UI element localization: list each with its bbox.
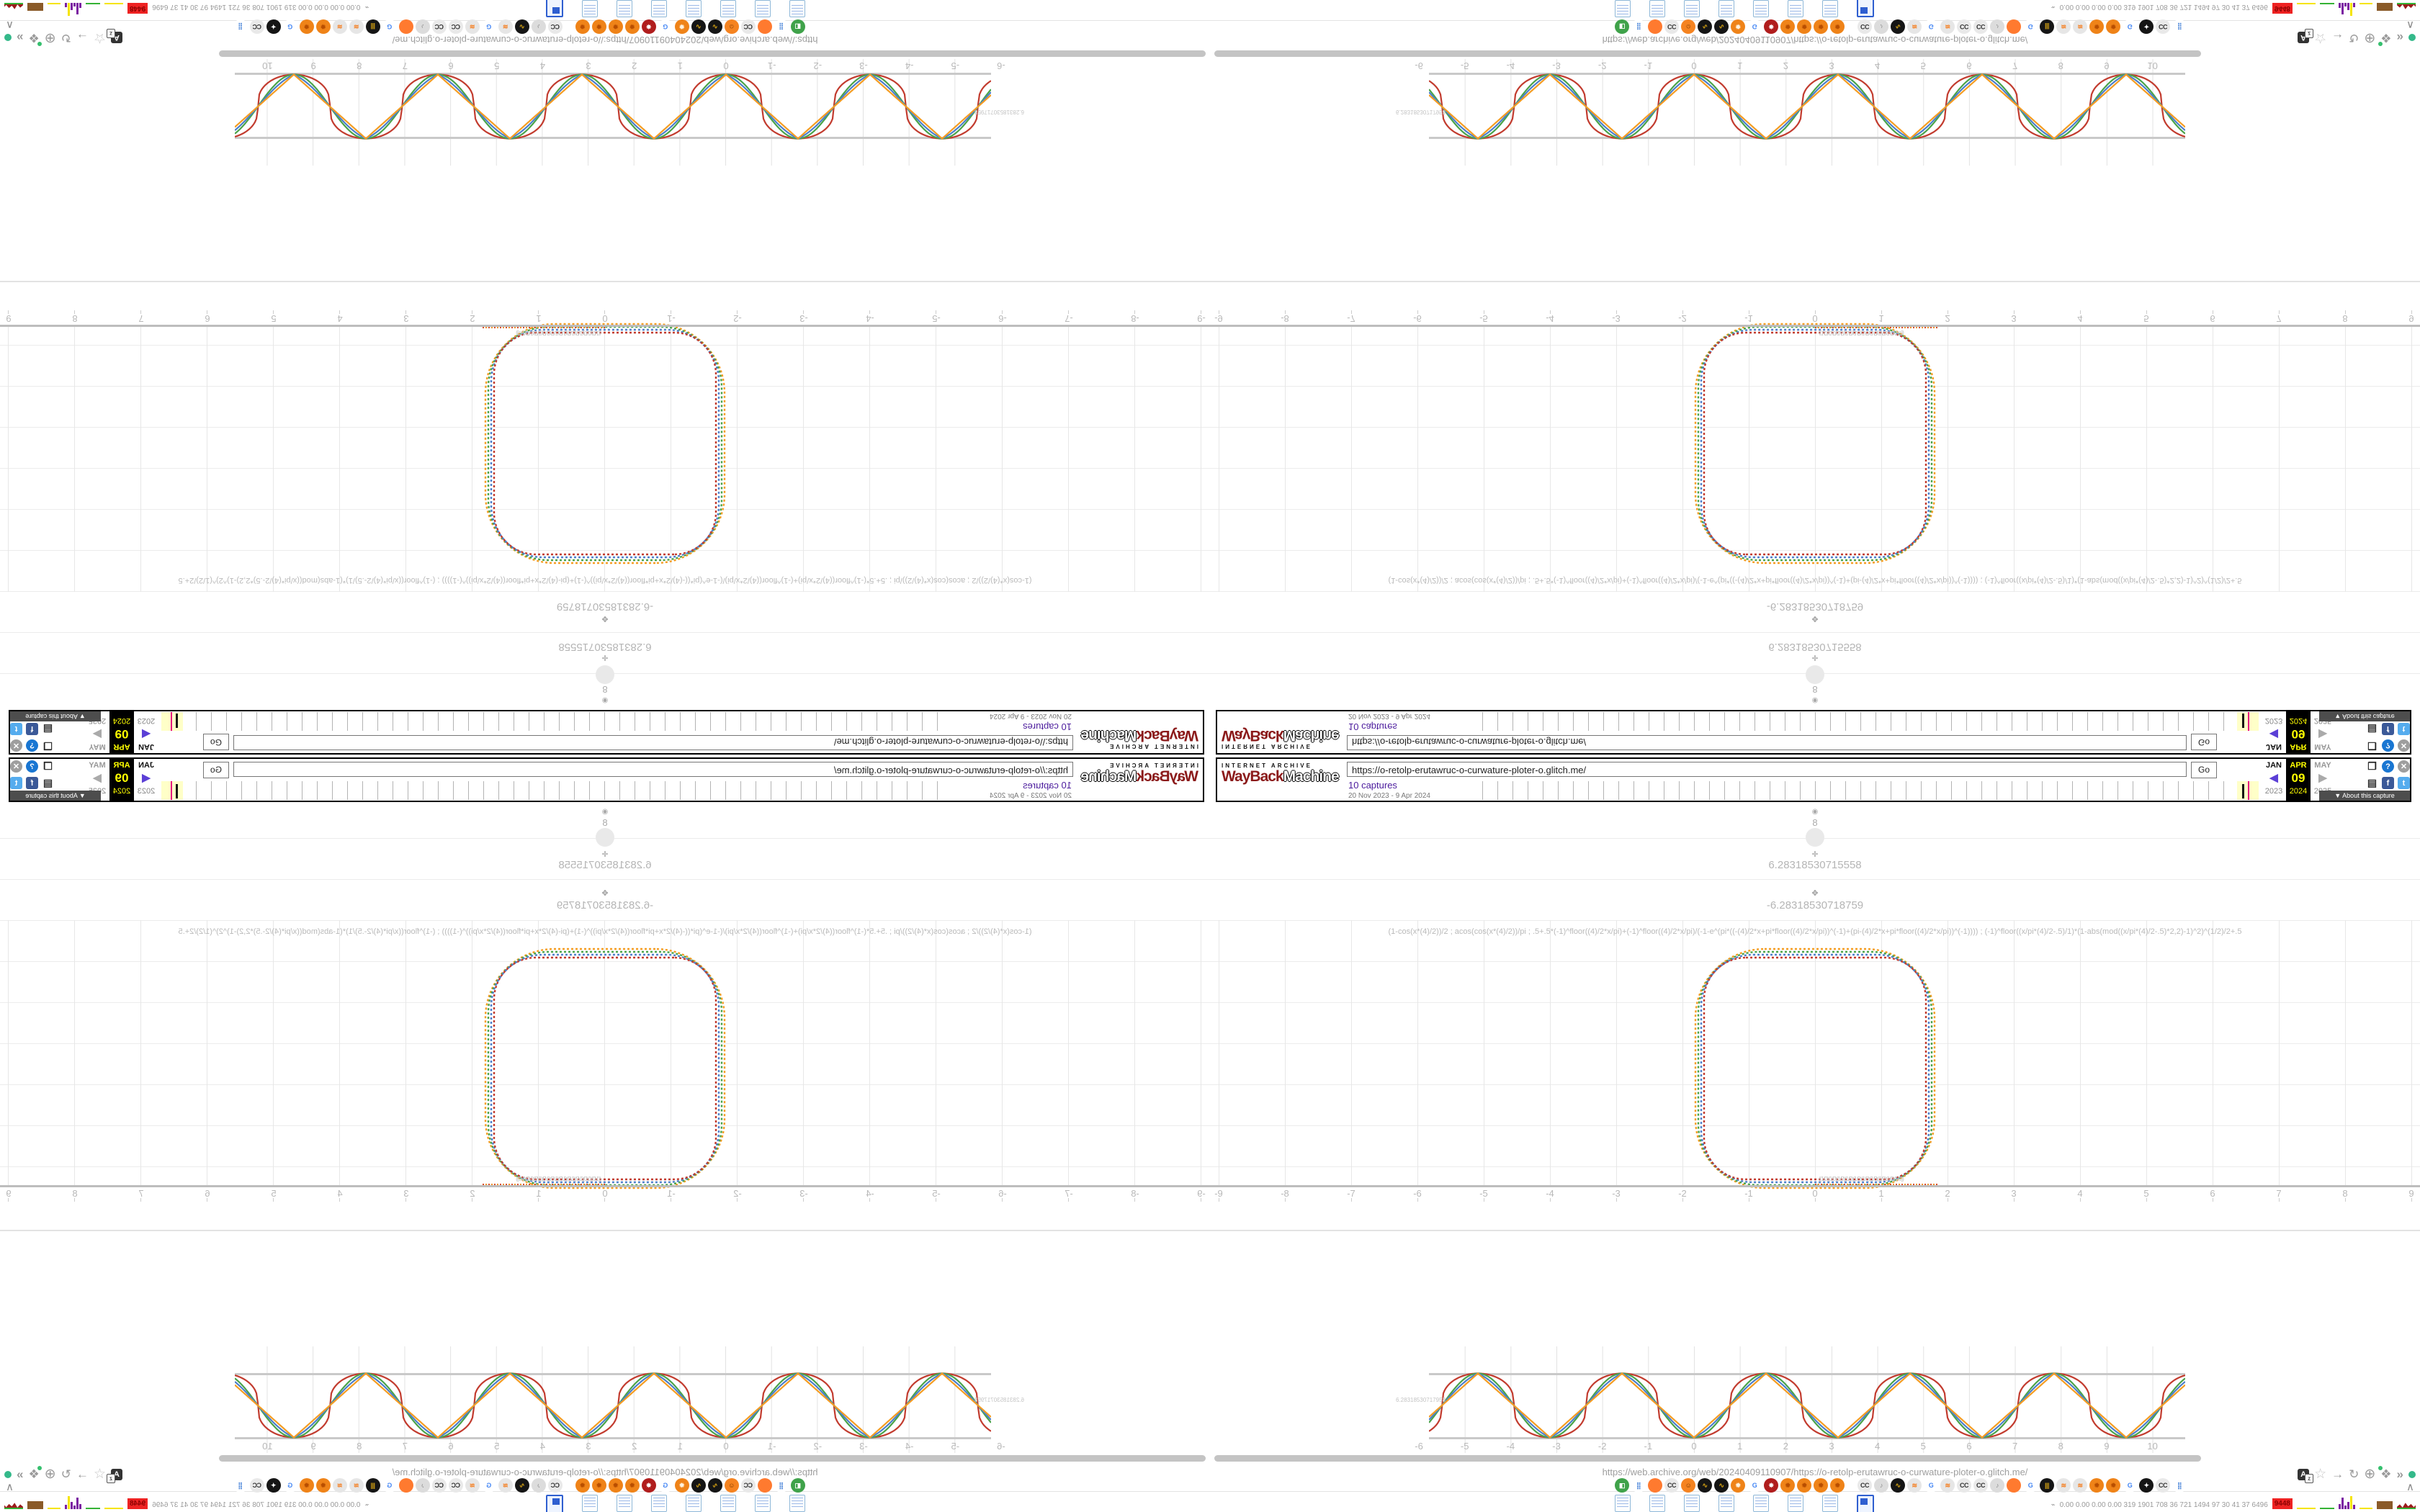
translate-icon[interactable]: Az xyxy=(111,32,122,43)
notepad-file-icon[interactable] xyxy=(1822,0,1838,17)
notepad-file-icon[interactable] xyxy=(755,0,771,17)
notepad-file-icon[interactable] xyxy=(1649,1495,1665,1512)
bookmark-favicon[interactable]: ☺ xyxy=(1681,19,1695,34)
bookmark-favicon[interactable]: ✹ xyxy=(1780,1478,1795,1493)
bookmark-favicon[interactable]: G xyxy=(382,19,397,34)
collapse-chevron-icon[interactable]: ∧ xyxy=(6,19,14,32)
sparkline-current-highlight[interactable] xyxy=(2237,781,2259,800)
bookmark-favicon[interactable]: ≋ xyxy=(465,1478,480,1493)
forward-arrow-icon[interactable]: → xyxy=(76,30,89,45)
bookmark-favicon[interactable]: G xyxy=(2123,19,2137,34)
bookmark-favicon[interactable] xyxy=(399,19,413,34)
window-app-icon[interactable] xyxy=(546,0,563,17)
next-capture-arrow[interactable]: ▶ xyxy=(85,770,109,786)
bookmark-favicon[interactable] xyxy=(1648,19,1662,34)
screenshot-icon[interactable]: ▤ xyxy=(2366,723,2378,735)
bookmark-favicon[interactable]: CC xyxy=(250,1478,264,1493)
bookmark-favicon[interactable]: ∿ xyxy=(515,1478,529,1493)
bookmark-favicon[interactable] xyxy=(1648,1478,1662,1493)
bookmark-favicon[interactable]: ∿ xyxy=(1714,1478,1729,1493)
address-url-text[interactable]: https://web.archive.org/web/202404091109… xyxy=(0,35,1210,45)
next-capture-arrow[interactable]: ▶ xyxy=(2311,726,2335,742)
notepad-file-icon[interactable] xyxy=(686,1495,702,1512)
bookmark-favicon[interactable]: ≋ xyxy=(349,1478,364,1493)
bookmark-favicon[interactable]: ||| xyxy=(366,1478,380,1493)
bookmark-favicon[interactable]: ✹ xyxy=(316,19,331,34)
captures-sparkline[interactable] xyxy=(1482,712,2237,731)
bookmark-favicon[interactable]: ✹ xyxy=(2089,19,2104,34)
bookmark-favicon[interactable] xyxy=(2007,1478,2021,1493)
overflow-chevrons-icon[interactable]: » xyxy=(17,1467,23,1482)
notepad-file-icon[interactable] xyxy=(1684,0,1700,17)
bookmark-favicon[interactable]: ✹ xyxy=(592,1478,606,1493)
prev-month-label[interactable]: JAN xyxy=(134,742,158,753)
twitter-share-icon[interactable]: t xyxy=(2398,777,2410,789)
bookmark-favicon[interactable]: CC xyxy=(449,1478,463,1493)
move-handle-icon[interactable]: ✥ xyxy=(0,614,1210,624)
bookmark-favicon[interactable]: ≋ xyxy=(333,1478,347,1493)
prev-year-label[interactable]: 2023 xyxy=(2262,716,2286,726)
bookmark-star-icon[interactable]: ☆ xyxy=(94,1467,106,1482)
bookmark-favicon[interactable]: ≋ xyxy=(1907,1478,1922,1493)
reload-icon[interactable]: ↻ xyxy=(61,1467,71,1482)
rotation-knob[interactable] xyxy=(1806,665,1824,684)
bookmark-favicon[interactable]: ✹ xyxy=(1814,19,1828,34)
bookmark-favicon[interactable]: CC xyxy=(1857,19,1872,34)
bookmark-favicon[interactable]: ✹ xyxy=(592,19,606,34)
bookmark-favicon[interactable]: G xyxy=(482,19,496,34)
globe-icon[interactable]: ⊕ xyxy=(2364,1467,2375,1482)
bookmark-favicon[interactable]: ◧ xyxy=(1615,19,1629,34)
next-month-label[interactable]: MAY xyxy=(2311,742,2335,753)
bookmark-favicon[interactable]: CC xyxy=(1957,1478,1971,1493)
move-handle-icon[interactable]: ✥ xyxy=(0,888,1210,898)
dial-icon[interactable]: ◉ xyxy=(0,808,1210,816)
horizontal-scrollbar-thumb[interactable] xyxy=(219,50,1206,57)
bookmark-favicon[interactable]: ≋ xyxy=(498,1478,513,1493)
bookmark-favicon[interactable]: CC xyxy=(1973,19,1988,34)
bookmark-favicon[interactable]: ✹ xyxy=(1814,1478,1828,1493)
twitter-share-icon[interactable]: t xyxy=(2398,723,2410,735)
address-url-text[interactable]: https://web.archive.org/web/202404091109… xyxy=(1210,35,2420,45)
bookmark-favicon[interactable]: ≋ xyxy=(349,19,364,34)
bookmark-favicon[interactable]: ◧ xyxy=(791,19,805,34)
prev-year-label[interactable]: 2023 xyxy=(2262,786,2286,796)
bookmark-favicon[interactable]: CC xyxy=(449,19,463,34)
notepad-file-icon[interactable] xyxy=(617,0,632,17)
captures-sparkline[interactable] xyxy=(1482,781,2237,800)
bookmark-favicon[interactable]: ∿ xyxy=(515,19,529,34)
forward-arrow-icon[interactable]: → xyxy=(76,1467,89,1482)
bookmark-favicon[interactable]: ✹ xyxy=(2106,19,2120,34)
bookmark-favicon[interactable]: ⣿ xyxy=(774,19,789,34)
horizontal-scrollbar-thumb[interactable] xyxy=(1214,1455,2201,1462)
bookmark-favicon[interactable]: ✹ xyxy=(609,19,623,34)
bookmark-favicon[interactable]: ✹ xyxy=(1731,1478,1745,1493)
prev-capture-arrow[interactable]: ◀ xyxy=(2262,770,2286,786)
wayback-logo[interactable]: INTERNET ARCHIVE WayBackMachine xyxy=(1222,727,1345,750)
translate-icon[interactable]: Az xyxy=(2298,32,2309,43)
overflow-chevrons-icon[interactable]: » xyxy=(2397,30,2403,45)
bookmark-favicon[interactable]: ≋ xyxy=(2073,19,2087,34)
notepad-file-icon[interactable] xyxy=(1788,0,1803,17)
collapse-chevron-icon[interactable]: ∧ xyxy=(6,1480,14,1493)
overflow-chevrons-icon[interactable]: » xyxy=(17,30,23,45)
current-year-label[interactable]: 2024 xyxy=(109,786,134,796)
address-url-text[interactable]: https://web.archive.org/web/202404091109… xyxy=(0,1467,1210,1477)
bookmark-favicon[interactable]: ||| xyxy=(2040,19,2054,34)
globe-icon[interactable]: ⊕ xyxy=(45,1467,56,1482)
facebook-share-icon[interactable]: f xyxy=(2382,777,2394,789)
bookmark-favicon[interactable]: ≋ xyxy=(498,19,513,34)
screenshot-icon[interactable]: ▤ xyxy=(42,777,54,789)
bookmark-favicon[interactable]: ✦ xyxy=(266,1478,281,1493)
bookmark-favicon[interactable]: ✹ xyxy=(675,1478,689,1493)
bookmark-favicon[interactable]: ✸ xyxy=(1764,19,1778,34)
bookmark-favicon[interactable]: ⣿ xyxy=(233,19,248,34)
extension-puzzle-icon[interactable]: ❖ xyxy=(28,1467,39,1482)
bookmark-favicon[interactable]: ≋ xyxy=(1940,1478,1955,1493)
bookmark-favicon[interactable]: ☺ xyxy=(725,1478,739,1493)
prev-year-label[interactable]: 2023 xyxy=(134,716,158,726)
rotation-knob[interactable] xyxy=(596,665,614,684)
rotation-knob[interactable] xyxy=(596,828,614,847)
bookmark-favicon[interactable]: CC xyxy=(548,1478,563,1493)
bookmark-favicon[interactable]: CC xyxy=(741,19,756,34)
bookmark-favicon[interactable]: G xyxy=(1747,1478,1762,1493)
captures-count-link[interactable]: 10 captures xyxy=(1023,780,1072,791)
bookmark-favicon[interactable] xyxy=(758,1478,772,1493)
bookmark-favicon[interactable]: ✹ xyxy=(575,1478,590,1493)
bookmark-favicon[interactable] xyxy=(758,19,772,34)
notepad-file-icon[interactable] xyxy=(651,1495,667,1512)
extension-puzzle-icon[interactable]: ❖ xyxy=(2380,1467,2391,1482)
bookmark-favicon[interactable]: ∿ xyxy=(708,1478,722,1493)
sparkline-current-highlight[interactable] xyxy=(2237,712,2259,731)
prev-capture-arrow[interactable]: ◀ xyxy=(2262,726,2286,742)
bookmark-favicon[interactable] xyxy=(399,1478,413,1493)
rotation-knob[interactable] xyxy=(1806,828,1824,847)
window-app-icon[interactable] xyxy=(1857,0,1874,17)
plus-handle-icon[interactable]: ✛ xyxy=(1210,850,2420,859)
bookmark-favicon[interactable]: ||| xyxy=(2040,1478,2054,1493)
wayback-go-button[interactable]: Go xyxy=(203,734,229,750)
bookmark-favicon[interactable]: ∿ xyxy=(691,19,706,34)
notepad-file-icon[interactable] xyxy=(1718,1495,1734,1512)
bookmark-favicon[interactable]: ∿ xyxy=(1698,1478,1712,1493)
bookmark-favicon[interactable]: ✦ xyxy=(266,19,281,34)
bookmark-favicon[interactable]: ✹ xyxy=(2089,1478,2104,1493)
help-icon[interactable]: ? xyxy=(26,760,38,773)
bookmark-favicon[interactable]: ✹ xyxy=(1731,19,1745,34)
capture-window-icon[interactable]: ❐ xyxy=(2366,760,2378,773)
bookmark-favicon[interactable]: ≋ xyxy=(465,19,480,34)
about-this-capture-toggle[interactable]: ▼ About this capture xyxy=(2319,791,2410,801)
bookmark-favicon[interactable]: CC xyxy=(1664,19,1679,34)
extension-puzzle-icon[interactable]: ❖ xyxy=(28,30,39,45)
bookmark-favicon[interactable]: ⣿ xyxy=(2172,19,2187,34)
close-toolbar-icon[interactable]: ✕ xyxy=(2398,739,2410,752)
bookmark-favicon[interactable]: G xyxy=(2023,19,2038,34)
bookmark-favicon[interactable]: ∿ xyxy=(1891,19,1905,34)
notepad-file-icon[interactable] xyxy=(1788,1495,1803,1512)
twitter-share-icon[interactable]: t xyxy=(10,777,22,789)
next-capture-arrow[interactable]: ▶ xyxy=(2311,770,2335,786)
bookmark-favicon[interactable]: ✹ xyxy=(1830,1478,1845,1493)
facebook-share-icon[interactable]: f xyxy=(2382,723,2394,735)
bookmark-favicon[interactable]: ✦ xyxy=(2139,19,2154,34)
wayback-logo[interactable]: INTERNET ARCHIVE WayBackMachine xyxy=(1222,762,1345,785)
plus-handle-icon[interactable]: ✛ xyxy=(1210,653,2420,662)
next-capture-arrow[interactable]: ▶ xyxy=(85,726,109,742)
bookmark-favicon[interactable]: ◧ xyxy=(1615,1478,1629,1493)
notepad-file-icon[interactable] xyxy=(1615,0,1631,17)
bookmark-favicon[interactable]: ∿ xyxy=(691,1478,706,1493)
captures-sparkline[interactable] xyxy=(183,781,938,800)
bookmark-favicon[interactable]: ♪ xyxy=(532,1478,546,1493)
notepad-file-icon[interactable] xyxy=(582,1495,598,1512)
wayback-logo[interactable]: INTERNET ARCHIVE WayBackMachine xyxy=(1075,762,1198,785)
notepad-file-icon[interactable] xyxy=(720,0,736,17)
captures-sparkline[interactable] xyxy=(183,712,938,731)
bookmark-favicon[interactable]: G xyxy=(283,19,297,34)
reload-icon[interactable]: ↻ xyxy=(61,30,71,45)
next-month-label[interactable]: MAY xyxy=(85,742,109,753)
bookmark-favicon[interactable]: ♪ xyxy=(532,19,546,34)
sparkline-current-highlight[interactable] xyxy=(161,712,183,731)
bookmark-favicon[interactable]: ≋ xyxy=(333,19,347,34)
bookmark-favicon[interactable]: ✹ xyxy=(609,1478,623,1493)
close-toolbar-icon[interactable]: ✕ xyxy=(10,739,22,752)
bookmark-favicon[interactable]: ≋ xyxy=(1940,19,1955,34)
help-icon[interactable]: ? xyxy=(2382,739,2394,752)
bookmark-favicon[interactable]: CC xyxy=(741,1478,756,1493)
wayback-url-input[interactable]: https://o-retolp-erutawruc-o-curwature-p… xyxy=(233,735,1073,750)
bookmark-favicon[interactable]: G xyxy=(482,1478,496,1493)
address-url-text[interactable]: https://web.archive.org/web/202404091109… xyxy=(1210,1467,2420,1477)
notepad-file-icon[interactable] xyxy=(1753,1495,1769,1512)
capture-window-icon[interactable]: ❐ xyxy=(2366,739,2378,752)
prev-capture-arrow[interactable]: ◀ xyxy=(134,770,158,786)
bookmark-favicon[interactable]: ✹ xyxy=(2106,1478,2120,1493)
prev-month-label[interactable]: JAN xyxy=(2262,759,2286,770)
bookmark-favicon[interactable]: ∿ xyxy=(708,19,722,34)
bookmark-star-icon[interactable]: ☆ xyxy=(94,30,106,45)
prev-month-label[interactable]: JAN xyxy=(134,759,158,770)
bookmark-star-icon[interactable]: ☆ xyxy=(2314,1467,2326,1482)
bookmark-favicon[interactable]: ✹ xyxy=(575,19,590,34)
wayback-logo[interactable]: INTERNET ARCHIVE WayBackMachine xyxy=(1075,727,1198,750)
dial-icon[interactable]: ◉ xyxy=(0,696,1210,704)
notepad-file-icon[interactable] xyxy=(1649,0,1665,17)
current-month-label[interactable]: APR xyxy=(2286,742,2311,753)
reload-icon[interactable]: ↻ xyxy=(2349,1467,2359,1482)
next-month-label[interactable]: MAY xyxy=(2311,759,2335,770)
bookmark-favicon[interactable]: ☺ xyxy=(1681,1478,1695,1493)
bookmark-favicon[interactable]: ✸ xyxy=(642,19,656,34)
bookmark-favicon[interactable]: G xyxy=(1924,1478,1938,1493)
bookmark-favicon[interactable]: ✦ xyxy=(2139,1478,2154,1493)
notepad-file-icon[interactable] xyxy=(1615,1495,1631,1512)
window-app-icon[interactable] xyxy=(1857,1495,1874,1512)
bookmark-favicon[interactable]: ✹ xyxy=(1797,1478,1811,1493)
bookmark-favicon[interactable]: ✹ xyxy=(675,19,689,34)
bookmark-favicon[interactable]: ⣿ xyxy=(1631,1478,1646,1493)
notepad-file-icon[interactable] xyxy=(755,1495,771,1512)
wayback-url-input[interactable]: https://o-retolp-erutawruc-o-curwature-p… xyxy=(1347,762,2187,777)
window-app-icon[interactable] xyxy=(546,1495,563,1512)
bookmark-favicon[interactable]: ≋ xyxy=(2073,1478,2087,1493)
wayback-url-input[interactable]: https://o-retolp-erutawruc-o-curwature-p… xyxy=(233,762,1073,777)
twitter-share-icon[interactable]: t xyxy=(10,723,22,735)
notepad-file-icon[interactable] xyxy=(720,1495,736,1512)
bookmark-favicon[interactable]: ⣿ xyxy=(233,1478,248,1493)
bookmark-favicon[interactable]: ≋ xyxy=(1907,19,1922,34)
about-this-capture-toggle[interactable]: ▼ About this capture xyxy=(2319,711,2410,721)
bookmark-favicon[interactable]: G xyxy=(382,1478,397,1493)
notepad-file-icon[interactable] xyxy=(686,0,702,17)
bookmark-favicon[interactable]: ≋ xyxy=(2056,1478,2071,1493)
bookmark-favicon[interactable] xyxy=(2007,19,2021,34)
capture-window-icon[interactable]: ❐ xyxy=(42,760,54,773)
bookmark-favicon[interactable]: ♪ xyxy=(1990,19,2004,34)
collapse-chevron-icon[interactable]: ∧ xyxy=(2406,19,2414,32)
screenshot-icon[interactable]: ▤ xyxy=(2366,777,2378,789)
move-handle-icon[interactable]: ✥ xyxy=(1210,614,2420,624)
bookmark-favicon[interactable]: ✹ xyxy=(316,1478,331,1493)
notepad-file-icon[interactable] xyxy=(789,0,805,17)
about-this-capture-toggle[interactable]: ▼ About this capture xyxy=(10,791,101,801)
bookmark-favicon[interactable]: G xyxy=(1924,19,1938,34)
forward-arrow-icon[interactable]: → xyxy=(2331,30,2344,45)
notepad-file-icon[interactable] xyxy=(1753,0,1769,17)
current-month-label[interactable]: APR xyxy=(109,742,134,753)
bookmark-favicon[interactable]: ✹ xyxy=(625,1478,640,1493)
bookmark-favicon[interactable]: ☺ xyxy=(725,19,739,34)
bookmark-favicon[interactable]: ∿ xyxy=(1891,1478,1905,1493)
current-year-label[interactable]: 2024 xyxy=(2286,786,2311,796)
current-year-label[interactable]: 2024 xyxy=(2286,716,2311,726)
bookmark-favicon[interactable]: ✹ xyxy=(1830,19,1845,34)
notepad-file-icon[interactable] xyxy=(617,1495,632,1512)
bookmark-favicon[interactable]: ∿ xyxy=(1714,19,1729,34)
reload-icon[interactable]: ↻ xyxy=(2349,30,2359,45)
bookmark-favicon[interactable]: G xyxy=(1747,19,1762,34)
bookmark-favicon[interactable]: ∿ xyxy=(1698,19,1712,34)
bookmark-favicon[interactable]: ✹ xyxy=(1780,19,1795,34)
bookmark-favicon[interactable]: G xyxy=(658,1478,673,1493)
next-month-label[interactable]: MAY xyxy=(85,759,109,770)
bookmark-favicon[interactable]: ⣿ xyxy=(774,1478,789,1493)
bookmark-favicon[interactable]: ✹ xyxy=(1797,19,1811,34)
notepad-file-icon[interactable] xyxy=(1684,1495,1700,1512)
captures-count-link[interactable]: 10 captures xyxy=(1348,780,1397,791)
bookmark-favicon[interactable]: CC xyxy=(250,19,264,34)
notepad-file-icon[interactable] xyxy=(582,0,598,17)
bookmark-favicon[interactable]: ⣿ xyxy=(1631,19,1646,34)
captures-count-link[interactable]: 10 captures xyxy=(1023,721,1072,732)
collapse-chevron-icon[interactable]: ∧ xyxy=(2406,1480,2414,1493)
plus-handle-icon[interactable]: ✛ xyxy=(0,653,1210,662)
notepad-file-icon[interactable] xyxy=(1718,0,1734,17)
forward-arrow-icon[interactable]: → xyxy=(2331,1467,2344,1482)
bookmark-favicon[interactable]: ♪ xyxy=(416,19,430,34)
help-icon[interactable]: ? xyxy=(26,739,38,752)
bookmark-favicon[interactable]: G xyxy=(2023,1478,2038,1493)
bookmark-favicon[interactable]: ✹ xyxy=(300,19,314,34)
prev-month-label[interactable]: JAN xyxy=(2262,742,2286,753)
translate-icon[interactable]: Az xyxy=(2298,1469,2309,1480)
bookmark-favicon[interactable]: CC xyxy=(2156,1478,2170,1493)
translate-icon[interactable]: Az xyxy=(111,1469,122,1480)
move-handle-icon[interactable]: ✥ xyxy=(1210,888,2420,898)
globe-icon[interactable]: ⊕ xyxy=(45,30,56,45)
current-month-label[interactable]: APR xyxy=(2286,759,2311,770)
bookmark-favicon[interactable]: ✹ xyxy=(625,19,640,34)
bookmark-favicon[interactable]: CC xyxy=(1957,19,1971,34)
notepad-file-icon[interactable] xyxy=(789,1495,805,1512)
bookmark-favicon[interactable]: ✸ xyxy=(1764,1478,1778,1493)
bookmark-favicon[interactable]: ||| xyxy=(366,19,380,34)
overflow-chevrons-icon[interactable]: » xyxy=(2397,1467,2403,1482)
horizontal-scrollbar-thumb[interactable] xyxy=(219,1455,1206,1462)
bookmark-favicon[interactable]: ♪ xyxy=(1874,19,1888,34)
current-year-label[interactable]: 2024 xyxy=(109,716,134,726)
bookmark-favicon[interactable]: G xyxy=(283,1478,297,1493)
dial-icon[interactable]: ◉ xyxy=(1210,808,2420,816)
bookmark-star-icon[interactable]: ☆ xyxy=(2314,30,2326,45)
dial-icon[interactable]: ◉ xyxy=(1210,696,2420,704)
sparkline-current-highlight[interactable] xyxy=(161,781,183,800)
bookmark-favicon[interactable]: ♪ xyxy=(1990,1478,2004,1493)
captures-count-link[interactable]: 10 captures xyxy=(1348,721,1397,732)
close-toolbar-icon[interactable]: ✕ xyxy=(10,760,22,773)
bookmark-favicon[interactable]: ⣿ xyxy=(2172,1478,2187,1493)
bookmark-favicon[interactable]: G xyxy=(658,19,673,34)
bookmark-favicon[interactable]: CC xyxy=(1664,1478,1679,1493)
bookmark-favicon[interactable]: CC xyxy=(432,19,447,34)
about-this-capture-toggle[interactable]: ▼ About this capture xyxy=(10,711,101,721)
help-icon[interactable]: ? xyxy=(2382,760,2394,773)
horizontal-scrollbar-thumb[interactable] xyxy=(1214,50,2201,57)
notepad-file-icon[interactable] xyxy=(651,0,667,17)
prev-capture-arrow[interactable]: ◀ xyxy=(134,726,158,742)
wayback-go-button[interactable]: Go xyxy=(2191,734,2217,750)
facebook-share-icon[interactable]: f xyxy=(26,723,38,735)
globe-icon[interactable]: ⊕ xyxy=(2364,30,2375,45)
extension-puzzle-icon[interactable]: ❖ xyxy=(2380,30,2391,45)
notepad-file-icon[interactable] xyxy=(1822,1495,1838,1512)
wayback-go-button[interactable]: Go xyxy=(2191,762,2217,778)
bookmark-favicon[interactable]: ♪ xyxy=(1874,1478,1888,1493)
screenshot-icon[interactable]: ▤ xyxy=(42,723,54,735)
capture-window-icon[interactable]: ❐ xyxy=(42,739,54,752)
current-month-label[interactable]: APR xyxy=(109,759,134,770)
bookmark-favicon[interactable]: CC xyxy=(1857,1478,1872,1493)
bookmark-favicon[interactable]: ✹ xyxy=(300,1478,314,1493)
bookmark-favicon[interactable]: ✸ xyxy=(642,1478,656,1493)
close-toolbar-icon[interactable]: ✕ xyxy=(2398,760,2410,773)
plus-handle-icon[interactable]: ✛ xyxy=(0,850,1210,859)
wayback-go-button[interactable]: Go xyxy=(203,762,229,778)
bookmark-favicon[interactable]: ◧ xyxy=(791,1478,805,1493)
prev-year-label[interactable]: 2023 xyxy=(134,786,158,796)
wayback-url-input[interactable]: https://o-retolp-erutawruc-o-curwature-p… xyxy=(1347,735,2187,750)
bookmark-favicon[interactable]: ≋ xyxy=(2056,19,2071,34)
facebook-share-icon[interactable]: f xyxy=(26,777,38,789)
bookmark-favicon[interactable]: CC xyxy=(432,1478,447,1493)
bookmark-favicon[interactable]: G xyxy=(2123,1478,2137,1493)
